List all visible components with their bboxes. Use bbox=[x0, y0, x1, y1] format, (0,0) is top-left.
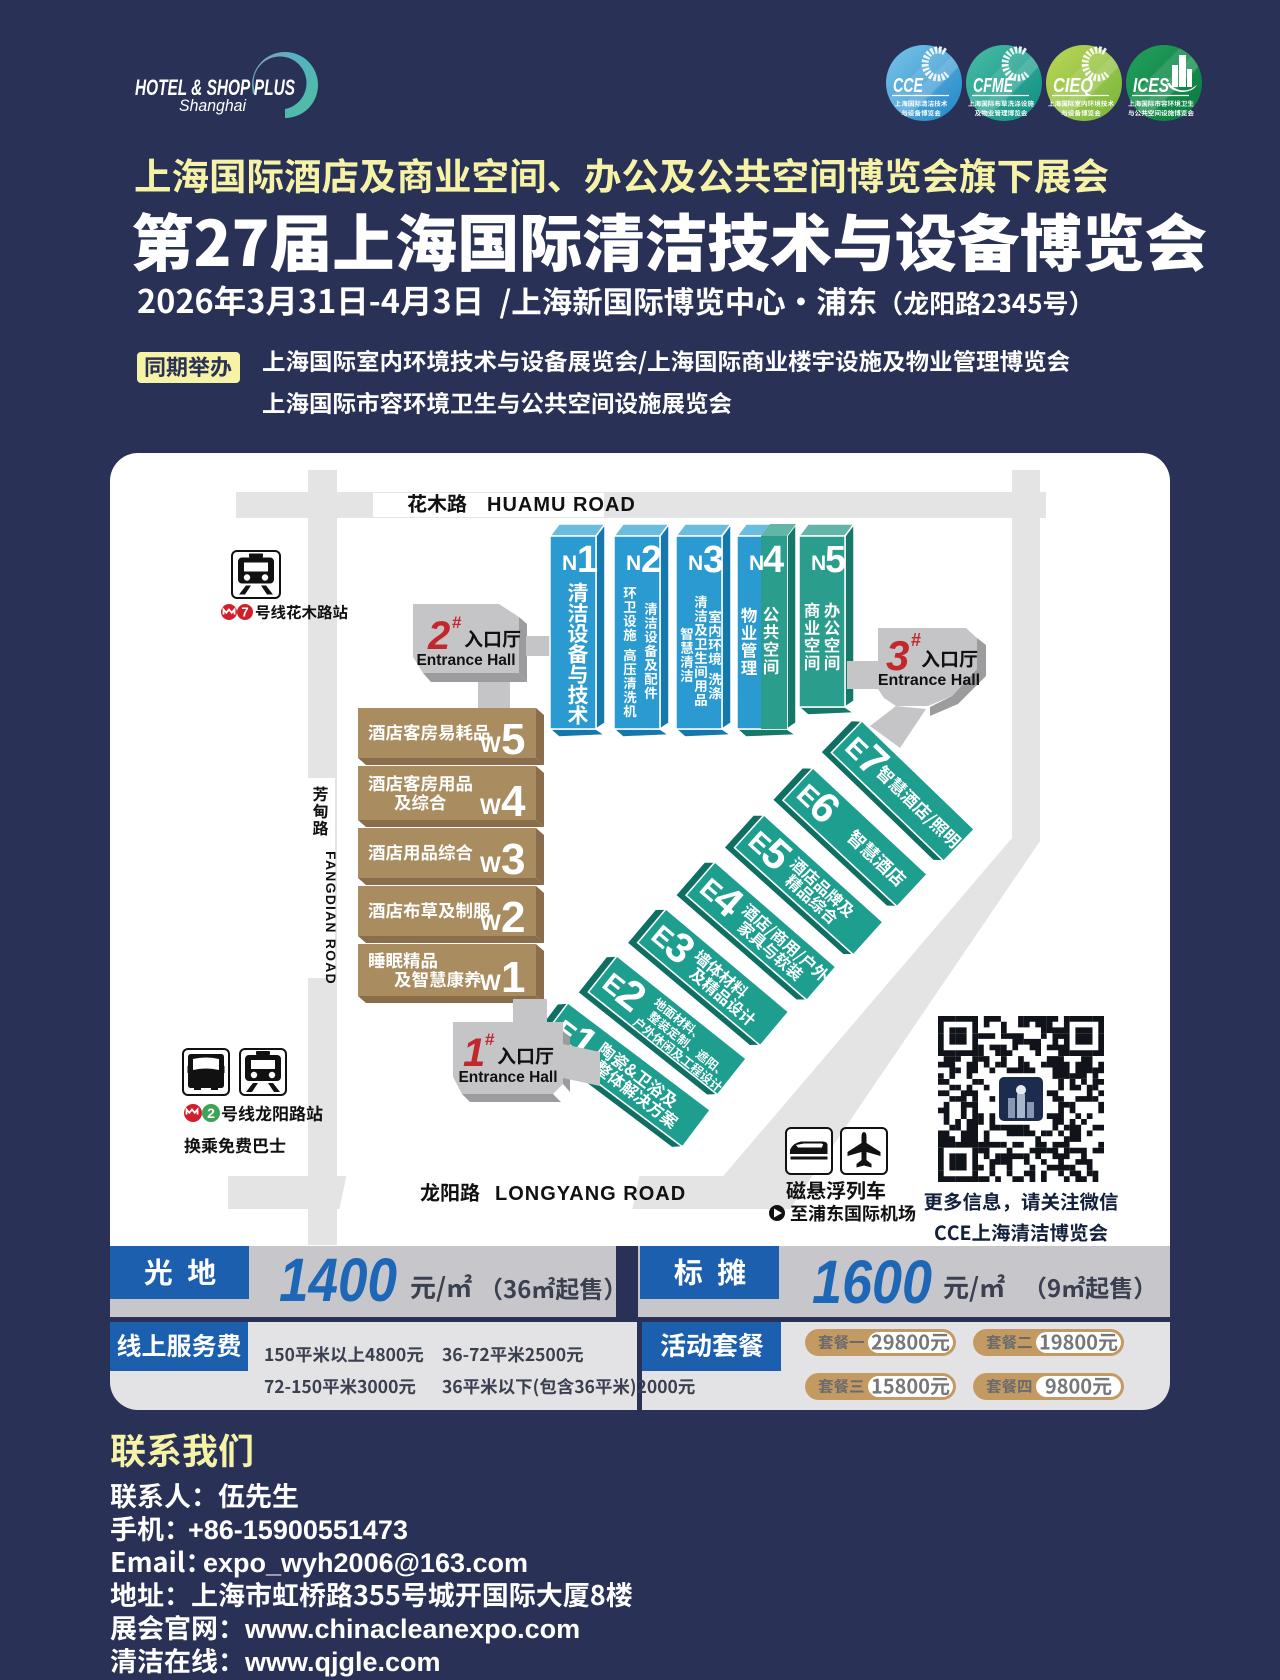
svg-text:Entrance Hall: Entrance Hall bbox=[416, 652, 515, 669]
svg-text:LONGYANG ROAD: LONGYANG ROAD bbox=[495, 1183, 686, 1205]
svg-text:2: 2 bbox=[641, 539, 662, 581]
svg-text:4: 4 bbox=[501, 777, 526, 826]
svg-text:Entrance Hall: Entrance Hall bbox=[878, 672, 980, 689]
svg-text:FANGDIAN ROAD: FANGDIAN ROAD bbox=[323, 851, 339, 985]
svg-text:2: 2 bbox=[207, 1105, 215, 1121]
svg-text:W: W bbox=[480, 970, 501, 995]
svg-text:Shanghai: Shanghai bbox=[179, 96, 247, 115]
svg-text:Entrance Hall: Entrance Hall bbox=[458, 1069, 557, 1086]
svg-text:5: 5 bbox=[501, 715, 525, 764]
svg-text:#: # bbox=[452, 613, 462, 632]
svg-text:1: 1 bbox=[577, 539, 598, 581]
svg-text:www.qjgle.com: www.qjgle.com bbox=[244, 1647, 441, 1677]
svg-text:#: # bbox=[911, 630, 921, 650]
svg-text:expo_wyh2006@163.com: expo_wyh2006@163.com bbox=[203, 1548, 528, 1578]
svg-text:1600: 1600 bbox=[812, 1248, 932, 1316]
svg-text:1400: 1400 bbox=[279, 1246, 397, 1314]
svg-text:N: N bbox=[749, 552, 764, 575]
svg-text:W: W bbox=[480, 794, 501, 819]
svg-text:N: N bbox=[562, 552, 577, 575]
svg-text:W: W bbox=[480, 732, 501, 757]
svg-text:W: W bbox=[480, 910, 501, 935]
svg-text:W: W bbox=[480, 852, 501, 877]
svg-text:N: N bbox=[688, 552, 703, 575]
svg-text:4: 4 bbox=[763, 539, 784, 581]
svg-text:CCE: CCE bbox=[893, 75, 923, 97]
svg-text:CIEQ: CIEQ bbox=[1053, 75, 1093, 97]
svg-text:www.chinacleanexpo.com: www.chinacleanexpo.com bbox=[244, 1614, 580, 1644]
svg-text:+86-15900551473: +86-15900551473 bbox=[188, 1515, 408, 1545]
svg-text:2: 2 bbox=[501, 893, 525, 942]
svg-text:3: 3 bbox=[501, 835, 525, 884]
svg-text:1: 1 bbox=[501, 953, 525, 1002]
svg-text:CFME: CFME bbox=[973, 75, 1013, 97]
svg-text:5: 5 bbox=[825, 539, 846, 581]
svg-text:#: # bbox=[485, 1030, 495, 1049]
svg-text:ICES: ICES bbox=[1133, 75, 1170, 97]
svg-text:HUAMU ROAD: HUAMU ROAD bbox=[487, 494, 636, 516]
svg-text:N: N bbox=[626, 552, 641, 575]
svg-text:3: 3 bbox=[703, 539, 724, 581]
svg-text:7: 7 bbox=[241, 605, 248, 620]
svg-text:N: N bbox=[811, 552, 826, 575]
